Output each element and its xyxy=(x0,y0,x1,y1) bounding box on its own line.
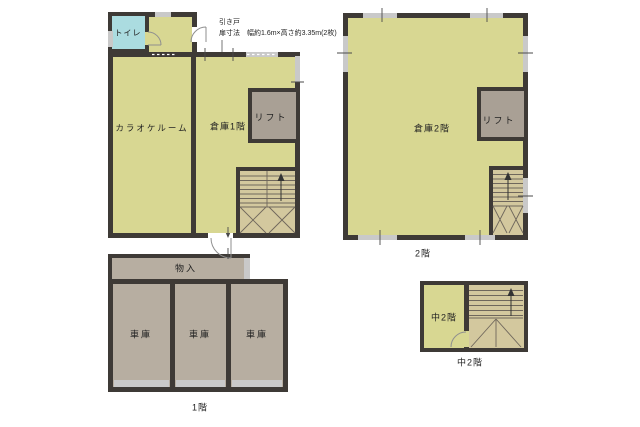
entrance-side-door-gap xyxy=(192,27,197,42)
window-2f-right-upper xyxy=(523,36,528,72)
floorplan-canvas: トイレ カラオケルーム 倉庫1階 リフト 引き戸 扉寸法 幅約1.6m×高さ約3… xyxy=(0,0,640,427)
label-warehouse-1f: 倉庫1階 xyxy=(210,120,246,133)
window-2f-right-lower xyxy=(523,178,528,213)
caption-second-floor: 2階 xyxy=(415,247,431,260)
window-entrance-top xyxy=(155,12,171,17)
label-storage: 物入 xyxy=(175,262,197,275)
label-lift-2f: リフト xyxy=(482,114,515,127)
wall-karaoke-warehouse xyxy=(191,52,196,238)
annotation-line1: 引き戸 xyxy=(219,17,240,27)
label-mezzanine-room: 中2階 xyxy=(431,311,457,324)
stairs-2f xyxy=(489,166,523,235)
label-toilet: トイレ xyxy=(115,28,142,39)
caption-first-floor: 1階 xyxy=(192,401,208,414)
window-2f-bottom-right xyxy=(465,235,495,240)
caption-mezzanine: 中2階 xyxy=(457,356,483,369)
garage-door-center xyxy=(176,380,225,387)
window-warehouse-right xyxy=(295,56,300,82)
stairs-1f xyxy=(236,167,295,233)
label-karaoke: カラオケルーム xyxy=(115,122,188,134)
window-2f-top-left xyxy=(363,13,397,18)
wall-garage-1 xyxy=(170,279,175,392)
window-2f-bottom-left xyxy=(358,235,397,240)
bottom-door-gap xyxy=(208,233,233,238)
sliding-door-band xyxy=(246,52,278,57)
garage-door-right xyxy=(232,380,282,387)
window-2f-top-right xyxy=(470,13,503,18)
storage-opening xyxy=(244,258,250,279)
label-garage-right: 車庫 xyxy=(246,328,268,341)
window-2f-left xyxy=(343,36,348,72)
stairs-mezzanine xyxy=(469,285,524,348)
label-warehouse-2f: 倉庫2階 xyxy=(414,122,450,135)
label-garage-center: 車庫 xyxy=(189,328,211,341)
mezzanine-door-gap xyxy=(464,331,469,347)
annotation-line2: 扉寸法 幅約1.6m×高さ約3.35m(2枚) xyxy=(219,28,337,38)
window-toilet-left xyxy=(108,31,113,47)
label-garage-left: 車庫 xyxy=(130,328,152,341)
garage-door-left xyxy=(114,380,169,387)
label-lift-1f: リフト xyxy=(254,111,287,124)
wall-garage-2 xyxy=(226,279,231,392)
toilet-door-gap xyxy=(145,32,149,45)
